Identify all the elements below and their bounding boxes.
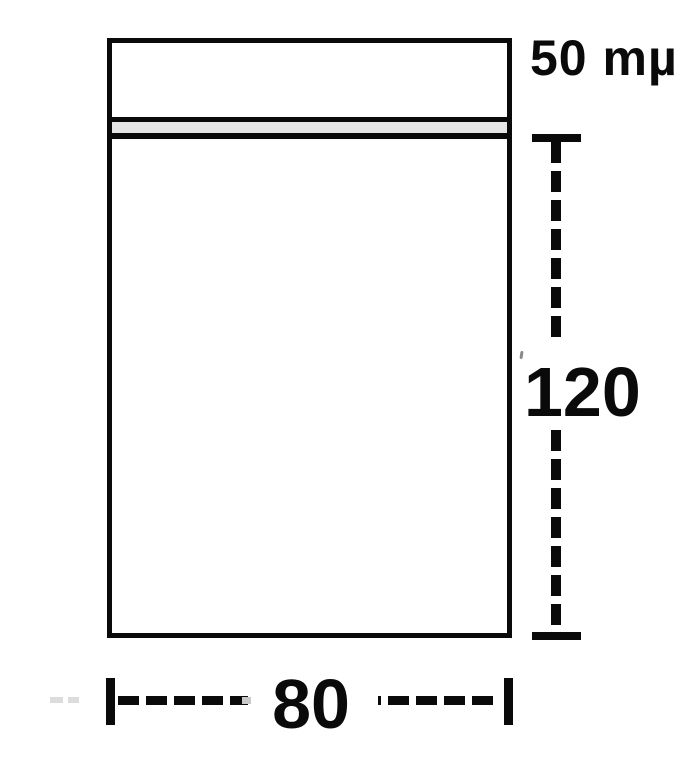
thickness-label: 50 mµ bbox=[530, 33, 678, 83]
height-dimension-bottom-tick bbox=[532, 632, 581, 640]
height-dimension-top-tick bbox=[532, 134, 581, 142]
stray-mark bbox=[519, 351, 523, 359]
width-dimension-right-tick bbox=[504, 678, 513, 725]
height-dimension-dashed-line-upper bbox=[551, 142, 561, 337]
width-dimension-left-tick bbox=[106, 678, 115, 725]
zipper-band bbox=[112, 122, 507, 133]
width-dimension-dashed-line-left bbox=[118, 696, 248, 705]
height-label: 120 bbox=[524, 357, 641, 427]
faint-dash-remnant bbox=[50, 697, 79, 703]
zipper-seal-line bbox=[107, 133, 512, 139]
diagram-canvas: 50 mµ 120 80 bbox=[0, 0, 688, 767]
width-dimension-dashed-line-right bbox=[378, 696, 493, 705]
faint-dash-remnant-end bbox=[242, 697, 251, 704]
width-label: 80 bbox=[266, 669, 356, 739]
height-dimension-dashed-line-lower bbox=[551, 428, 561, 625]
